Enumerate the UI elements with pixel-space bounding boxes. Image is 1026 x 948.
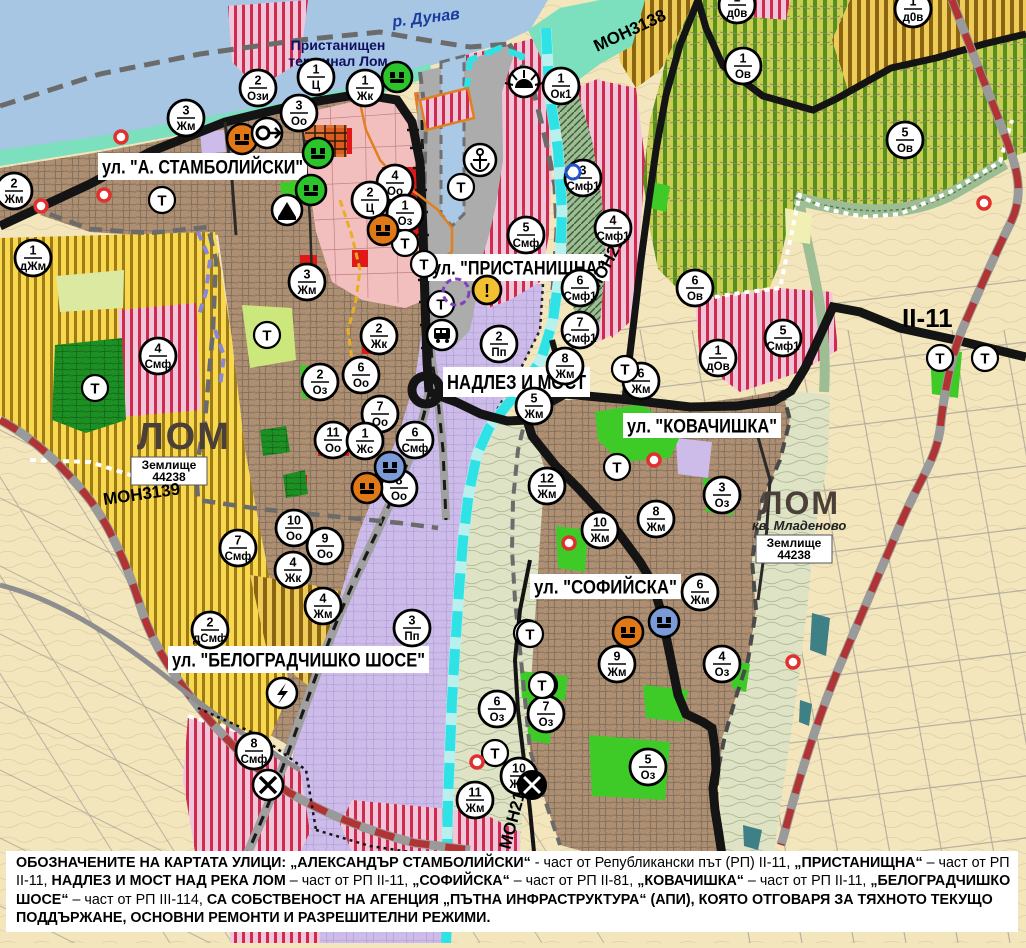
svg-text:7: 7 — [577, 316, 584, 330]
svg-text:Оз: Оз — [490, 712, 505, 724]
svg-text:4: 4 — [155, 342, 162, 356]
svg-text:Т: Т — [90, 381, 99, 398]
svg-text:2: 2 — [207, 616, 214, 630]
svg-text:2: 2 — [496, 330, 503, 344]
svg-text:1: 1 — [362, 427, 369, 441]
svg-text:Пп: Пп — [491, 347, 506, 359]
svg-text:1: 1 — [362, 74, 369, 88]
svg-text:3: 3 — [304, 268, 311, 282]
svg-text:ЛОМ: ЛОМ — [137, 416, 231, 458]
svg-text:44238: 44238 — [777, 548, 811, 562]
svg-text:10: 10 — [287, 514, 301, 528]
svg-text:4: 4 — [392, 169, 399, 183]
svg-text:1: 1 — [313, 63, 320, 77]
svg-text:6: 6 — [358, 361, 365, 375]
svg-text:Жм: Жм — [537, 489, 557, 501]
svg-text:Оз: Оз — [313, 385, 328, 397]
svg-text:2: 2 — [376, 322, 383, 336]
svg-text:6: 6 — [692, 274, 699, 288]
svg-text:Т: Т — [980, 351, 989, 368]
svg-text:2: 2 — [367, 186, 374, 200]
svg-text:Т: Т — [419, 257, 428, 274]
svg-text:Оо: Оо — [325, 443, 341, 455]
svg-text:Оз: Оз — [715, 667, 730, 679]
svg-text:Смф: Смф — [241, 754, 268, 766]
svg-text:Т: Т — [400, 236, 409, 253]
svg-text:Оз: Оз — [539, 717, 554, 729]
svg-text:4: 4 — [290, 556, 297, 570]
svg-text:Жм: Жм — [590, 533, 610, 545]
svg-text:Смф1: Смф1 — [766, 341, 800, 353]
svg-text:10: 10 — [593, 516, 607, 530]
svg-text:Смф: Смф — [513, 238, 540, 250]
svg-text:II-11: II-11 — [902, 303, 953, 333]
svg-text:Жк: Жк — [370, 339, 387, 351]
svg-text:9: 9 — [322, 532, 329, 546]
svg-text:Смф1: Смф1 — [566, 181, 600, 193]
svg-text:Жс: Жс — [356, 444, 374, 456]
svg-text:Смф: Смф — [402, 443, 429, 455]
svg-text:Ц: Ц — [312, 80, 321, 92]
svg-text:6: 6 — [494, 695, 501, 709]
svg-text:Ов: Ов — [897, 143, 913, 155]
svg-text:Жм: Жм — [297, 285, 317, 297]
svg-text:Жк: Жк — [284, 573, 301, 585]
svg-text:5: 5 — [645, 753, 652, 767]
svg-text:д0в: д0в — [903, 12, 924, 24]
svg-text:Оз: Оз — [398, 216, 413, 228]
svg-text:4: 4 — [719, 650, 726, 664]
svg-text:Смф1: Смф1 — [563, 333, 597, 345]
svg-text:Оо: Оо — [286, 531, 302, 543]
svg-text:3: 3 — [719, 481, 726, 495]
svg-text:1: 1 — [910, 0, 917, 9]
svg-text:Т: Т — [935, 351, 944, 368]
svg-text:!: ! — [484, 281, 490, 301]
svg-text:Т: Т — [537, 678, 546, 695]
svg-text:Жк: Жк — [356, 91, 373, 103]
svg-text:Смф1: Смф1 — [596, 231, 630, 243]
svg-text:Смф1: Смф1 — [563, 291, 597, 303]
svg-text:8: 8 — [653, 505, 660, 519]
svg-text:2: 2 — [317, 368, 324, 382]
svg-text:Ов: Ов — [687, 291, 703, 303]
svg-text:Жм: Жм — [555, 369, 575, 381]
svg-text:5: 5 — [780, 324, 787, 338]
svg-text:2: 2 — [11, 177, 18, 191]
svg-text:1: 1 — [558, 72, 565, 86]
svg-text:Жм: Жм — [646, 522, 666, 534]
svg-text:ул. "СОФИЙСКА": ул. "СОФИЙСКА" — [534, 576, 677, 598]
svg-text:Смф: Смф — [225, 551, 252, 563]
svg-text:Жм: Жм — [524, 409, 544, 421]
svg-text:Пристанищен: Пристанищен — [291, 37, 386, 53]
svg-text:2: 2 — [255, 74, 262, 88]
svg-text:Смф: Смф — [145, 359, 172, 371]
svg-text:1: 1 — [402, 199, 409, 213]
svg-text:8: 8 — [251, 737, 258, 751]
svg-text:Ов: Ов — [735, 69, 751, 81]
svg-text:д0в: д0в — [727, 8, 748, 20]
svg-text:3: 3 — [183, 104, 190, 118]
svg-text:3: 3 — [296, 99, 303, 113]
svg-text:Оо: Оо — [291, 116, 307, 128]
svg-text:4: 4 — [610, 214, 617, 228]
svg-text:дЖм: дЖм — [20, 261, 46, 273]
svg-text:Жм: Жм — [607, 667, 627, 679]
svg-text:1: 1 — [715, 344, 722, 358]
svg-text:Т: Т — [490, 746, 499, 763]
svg-text:Т: Т — [262, 328, 271, 345]
svg-text:5: 5 — [902, 126, 909, 140]
svg-text:Жм: Жм — [690, 595, 710, 607]
svg-text:5: 5 — [531, 392, 538, 406]
svg-text:ЛОМ: ЛОМ — [760, 485, 840, 521]
svg-text:Жм: Жм — [465, 803, 485, 815]
svg-text:4: 4 — [320, 592, 327, 606]
svg-text:Оз: Оз — [641, 770, 656, 782]
svg-text:11: 11 — [326, 426, 339, 440]
svg-text:Оз: Оз — [715, 498, 730, 510]
svg-text:Жм: Жм — [4, 194, 24, 206]
svg-text:6: 6 — [577, 274, 584, 288]
svg-text:1: 1 — [740, 52, 747, 66]
svg-text:ул. "А. СТАМБОЛИЙСКИ": ул. "А. СТАМБОЛИЙСКИ" — [102, 156, 303, 178]
svg-text:ул. "КОВАЧИШКА": ул. "КОВАЧИШКА" — [627, 416, 777, 437]
svg-text:Жм: Жм — [631, 384, 651, 396]
svg-text:Т: Т — [456, 180, 465, 197]
svg-text:кв. Младеново: кв. Младеново — [752, 518, 846, 533]
svg-text:Т: Т — [620, 362, 629, 379]
svg-text:дСмф: дСмф — [193, 633, 227, 645]
svg-text:6: 6 — [697, 578, 704, 592]
svg-text:Пп: Пп — [404, 631, 419, 643]
svg-text:5: 5 — [523, 221, 530, 235]
svg-text:Оо: Оо — [317, 549, 333, 561]
svg-text:6: 6 — [412, 426, 419, 440]
svg-text:11: 11 — [468, 786, 481, 800]
svg-text:Ози: Ози — [247, 91, 269, 103]
svg-text:Т: Т — [525, 627, 534, 644]
svg-text:9: 9 — [614, 650, 621, 664]
svg-text:12: 12 — [540, 472, 554, 486]
svg-text:Жм: Жм — [313, 609, 333, 621]
svg-text:1: 1 — [734, 0, 741, 5]
svg-text:8: 8 — [562, 352, 569, 366]
svg-text:Ц: Ц — [366, 203, 375, 215]
svg-text:Ок1: Ок1 — [550, 89, 572, 101]
svg-text:Оо: Оо — [391, 491, 407, 503]
svg-text:7: 7 — [235, 534, 242, 548]
svg-text:7: 7 — [543, 700, 550, 714]
svg-text:Т: Т — [612, 460, 621, 477]
svg-text:1: 1 — [30, 244, 37, 258]
svg-text:Оо: Оо — [353, 378, 369, 390]
svg-text:ул. "БЕЛОГРАДЧИШКО ШОСЕ": ул. "БЕЛОГРАДЧИШКО ШОСЕ" — [172, 650, 425, 671]
svg-text:3: 3 — [409, 614, 416, 628]
svg-text:дОв: дОв — [706, 361, 729, 373]
svg-text:Жм: Жм — [176, 121, 196, 133]
svg-text:Т: Т — [157, 193, 166, 210]
svg-text:7: 7 — [377, 400, 384, 414]
